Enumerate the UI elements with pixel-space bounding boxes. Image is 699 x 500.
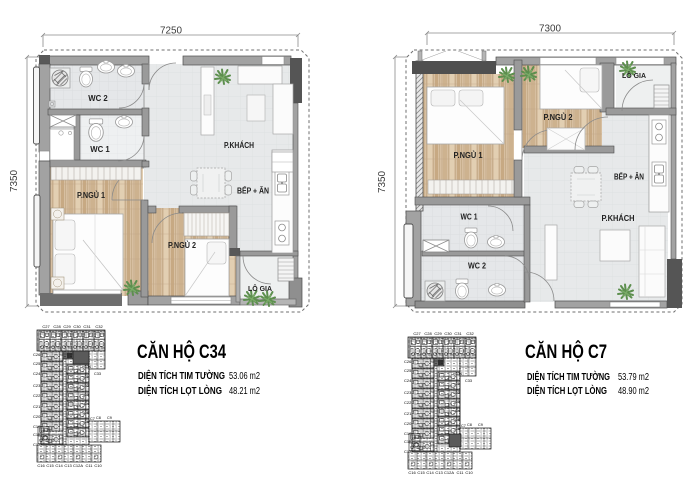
svg-text:BẾP + ĂN: BẾP + ĂN [614,172,644,182]
svg-text:CĂN HỘ C7: CĂN HỘ C7 [525,339,607,363]
svg-text:7300: 7300 [539,23,561,35]
svg-text:DIỆN TÍCH LỌT LÒNG: DIỆN TÍCH LỌT LÒNG [138,384,222,397]
svg-text:P.NGỦ 2: P.NGỦ 2 [168,241,196,250]
svg-text:P.NGỦ 1: P.NGỦ 1 [454,151,484,160]
svg-text:53.06 m2: 53.06 m2 [229,371,260,382]
svg-text:7350: 7350 [376,171,388,193]
svg-text:DIỆN TÍCH TIM TƯỜNG: DIỆN TÍCH TIM TƯỜNG [527,370,610,383]
svg-text:CĂN HỘ C34: CĂN HỘ C34 [137,339,226,363]
svg-text:DIỆN TÍCH LỌT LÒNG: DIỆN TÍCH LỌT LÒNG [527,384,607,397]
svg-text:P.NGỦ 2: P.NGỦ 2 [544,113,574,122]
svg-text:48.90 m2: 48.90 m2 [618,386,649,397]
svg-text:7350: 7350 [8,170,20,192]
svg-text:P.KHÁCH: P.KHÁCH [602,214,635,223]
svg-text:BẾP + ĂN: BẾP + ĂN [237,186,269,196]
svg-text:DIỆN TÍCH TIM TƯỜNG: DIỆN TÍCH TIM TƯỜNG [138,369,225,382]
svg-text:LÔ GIA: LÔ GIA [622,71,647,80]
svg-text:P.NGỦ 1: P.NGỦ 1 [77,191,105,200]
svg-text:P.KHÁCH: P.KHÁCH [224,141,254,150]
svg-text:7250: 7250 [160,25,182,37]
svg-text:WC 2: WC 2 [88,94,108,103]
svg-text:WC 1: WC 1 [90,145,110,154]
svg-text:53.79 m2: 53.79 m2 [618,372,649,383]
svg-text:WC 1: WC 1 [461,213,478,222]
svg-text:48.21 m2: 48.21 m2 [229,386,260,397]
svg-text:WC 2: WC 2 [468,262,486,271]
svg-text:LÔ GIA: LÔ GIA [248,284,273,293]
